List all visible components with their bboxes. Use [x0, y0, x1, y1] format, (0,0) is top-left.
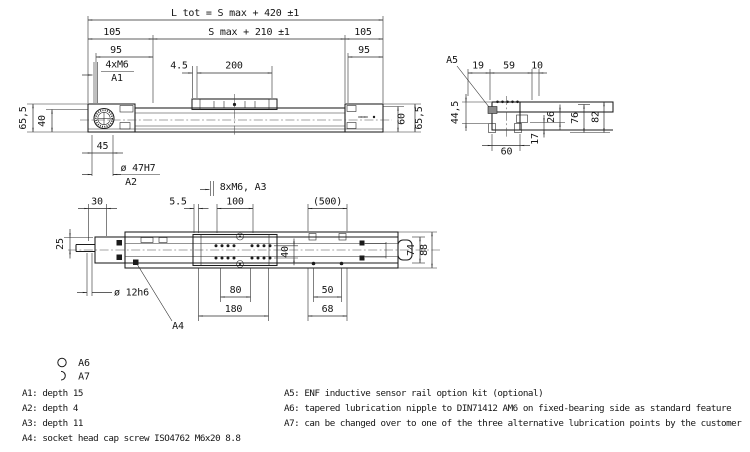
- notes: A1: depth 15 A2: depth 4 A3: depth 11 A4…: [22, 388, 742, 444]
- dim-40-side: 40: [37, 115, 48, 127]
- legend-a6-label: A6: [78, 358, 90, 369]
- label-a4: A4: [172, 321, 184, 332]
- side-elevation-view: L tot = S max + 420 ±1 105 S max + 210 ±…: [18, 8, 425, 196]
- section-geometry: [457, 66, 613, 137]
- dim-10: 10: [531, 61, 543, 72]
- dim-65-5-left: 65,5: [18, 106, 29, 129]
- dim-95-right: 95: [358, 45, 370, 56]
- lubrication-nipple-icon: [58, 358, 66, 366]
- plan-view: 30 5.5 100 (500) 25: [55, 197, 440, 333]
- plan-geometry: [68, 232, 440, 321]
- dim-60-section: 60: [501, 147, 513, 158]
- note-a4: A4: socket head cap screw ISO4762 M6x20 …: [22, 433, 241, 444]
- note-a3: A3: depth 11: [22, 418, 83, 429]
- note-a7: A7: can be changed over to one of the th…: [284, 418, 742, 429]
- dim-180: 180: [225, 304, 243, 315]
- dim-95-left: 95: [110, 45, 122, 56]
- technical-drawing-page: L tot = S max + 420 ±1 105 S max + 210 ±…: [0, 0, 750, 452]
- drive-shaft-flange: [94, 109, 114, 129]
- dim-30: 30: [91, 197, 103, 208]
- note-a1: A1: depth 15: [22, 388, 83, 399]
- dim-50: 50: [322, 285, 334, 296]
- dim-25: 25: [55, 238, 66, 250]
- label-a5: A5: [446, 55, 458, 66]
- alternative-lubrication-icon: [61, 371, 65, 380]
- dim-l-tot: L tot = S max + 420 ±1: [171, 8, 299, 19]
- label-a1: A1: [111, 73, 123, 84]
- engineering-drawing-canvas: L tot = S max + 420 ±1 105 S max + 210 ±…: [0, 0, 750, 452]
- dim-19: 19: [472, 61, 484, 72]
- dim-76: 76: [570, 112, 581, 124]
- dim-80: 80: [230, 285, 242, 296]
- sensor-rail-block: [488, 107, 497, 114]
- legend: A6 A7: [58, 358, 90, 383]
- label-a2: A2: [125, 177, 137, 188]
- dim-26: 26: [546, 111, 557, 123]
- dim-105-left: 105: [103, 27, 121, 38]
- carriage-side-view: [192, 94, 277, 137]
- dim-65-5-right: 65,5: [414, 106, 425, 129]
- label-8xm6-a3: 8xM6, A3: [220, 182, 267, 193]
- plan-dimensions: 30 5.5 100 (500) 25: [55, 197, 437, 333]
- carriage-bolt-holes: [215, 244, 272, 259]
- dim-dia47: ø 47H7: [121, 163, 156, 174]
- dim-44-5: 44,5: [450, 101, 461, 124]
- dim-60-right: 60: [397, 113, 408, 125]
- dim-82: 82: [591, 111, 602, 123]
- label-4xm6: 4xM6: [105, 60, 128, 71]
- legend-a7-label: A7: [78, 372, 90, 383]
- dim-4-5: 4.5: [170, 61, 188, 72]
- end-section-view: A5 19 59 10 44,5 26: [446, 55, 613, 158]
- dim-59: 59: [503, 61, 515, 72]
- dim-40-plan: 40: [280, 246, 291, 258]
- dim-74: 74: [406, 244, 417, 256]
- dim-100: 100: [226, 197, 244, 208]
- dim-105-right: 105: [354, 27, 372, 38]
- dim-17: 17: [530, 133, 541, 145]
- dim-5-5: 5.5: [169, 197, 187, 208]
- dim-45: 45: [97, 141, 109, 152]
- dim-68: 68: [322, 304, 334, 315]
- dim-dia12: ø 12h6: [114, 288, 149, 299]
- dim-500: (500): [313, 197, 342, 208]
- note-a2: A2: depth 4: [22, 403, 79, 414]
- section-dimensions: A5 19 59 10 44,5 26: [446, 55, 610, 158]
- note-a5: A5: ENF inductive sensor rail option kit…: [284, 388, 543, 399]
- dim-88: 88: [419, 244, 430, 256]
- dim-200: 200: [225, 61, 243, 72]
- dim-smax: S max + 210 ±1: [208, 27, 290, 38]
- note-a6: A6: tapered lubrication nipple to DIN714…: [284, 403, 731, 414]
- side-view-dimensions: L tot = S max + 420 ±1 105 S max + 210 ±…: [18, 8, 425, 196]
